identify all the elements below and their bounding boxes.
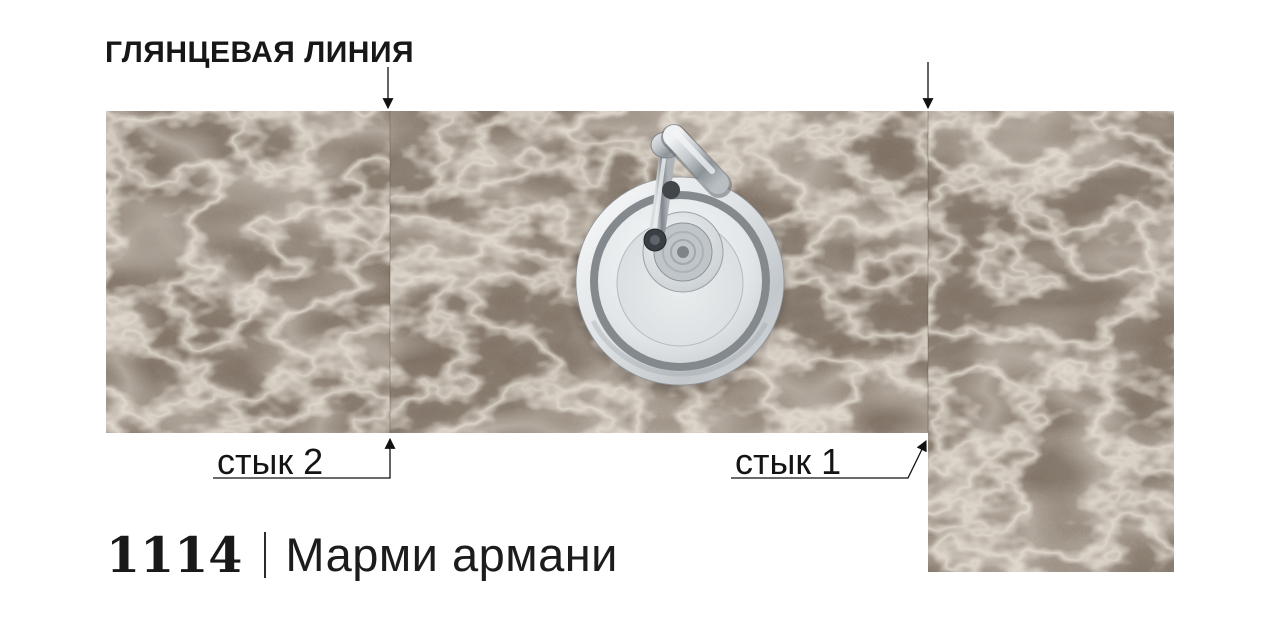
product-code: 1114 [106,529,242,581]
product-name: Марми армани [285,529,618,581]
glossy-line-label: ГЛЯНЦЕВАЯ ЛИНИЯ [105,36,414,70]
product-caption: 1114 Марми армани [106,529,618,581]
countertop-graphic [106,111,1174,572]
joint-2-label: стык 2 [217,441,323,483]
joint-1-label: стык 1 [735,441,841,483]
caption-divider [264,532,266,578]
worktop-diagram: ГЛЯНЦЕВАЯ ЛИНИЯ [0,0,1280,640]
